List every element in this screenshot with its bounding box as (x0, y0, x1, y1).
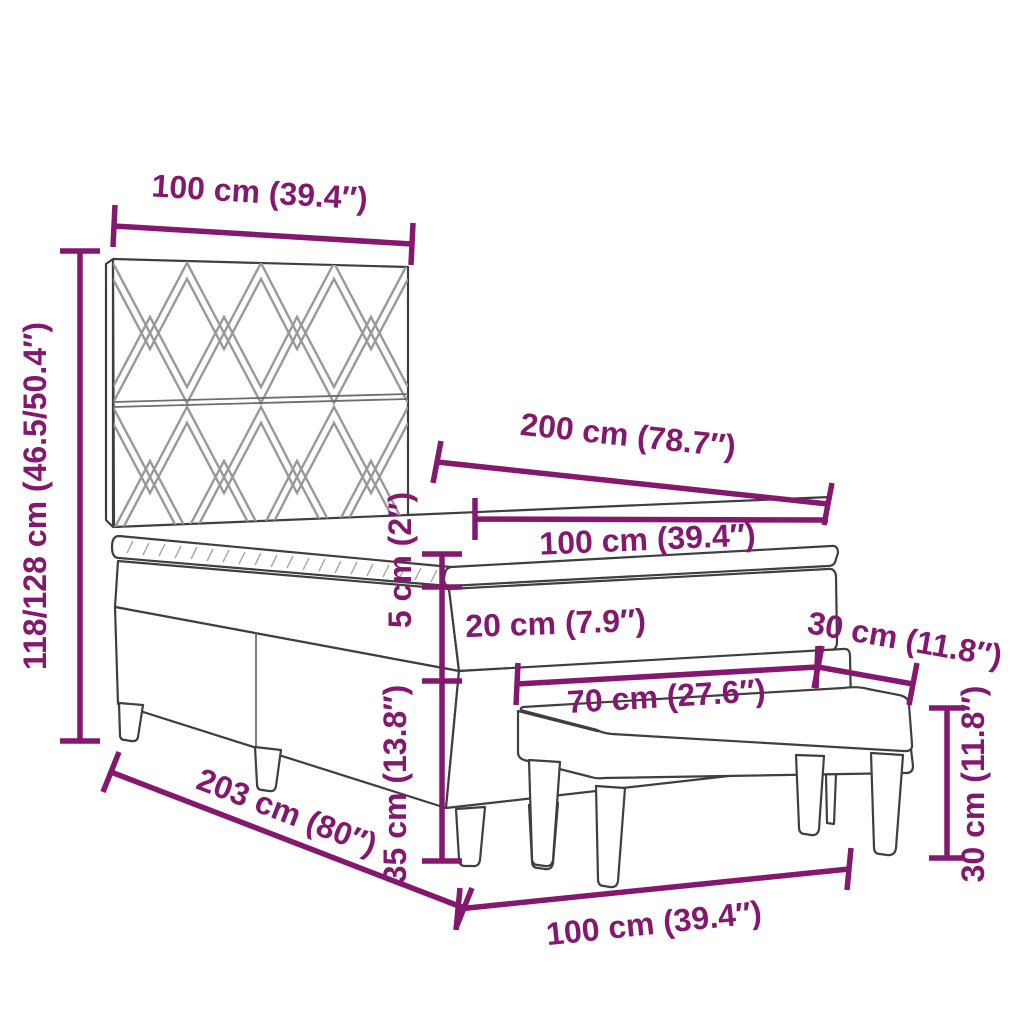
bench-leg (596, 786, 625, 887)
bench-leg (871, 753, 903, 855)
product-dimension-diagram: 100 cm (39.4″) 118/128 cm (46.5/50.4″) 2… (0, 0, 1024, 1024)
dimension-label: 100 cm (39.4″) (151, 167, 369, 216)
dimension-label: 118/128 cm (46.5/50.4″) (17, 322, 53, 670)
dimension-line (60, 251, 100, 741)
dim-bed-foot-width: 100 cm (39.4″) (456, 848, 851, 952)
headboard-front-face (113, 259, 408, 527)
dimension-label-topper: 5 cm (2″) (382, 492, 418, 628)
dimension-line (113, 205, 413, 265)
dim-bench-height: 30 cm (11.8″) (929, 686, 991, 883)
dimension-label: 100 cm (39.4″) (544, 894, 763, 952)
dim-bed-length: 200 cm (78.7″) (433, 406, 832, 525)
bed-leg (456, 807, 485, 866)
bed-diagram-svg: 100 cm (39.4″) 118/128 cm (46.5/50.4″) 2… (0, 0, 1024, 1024)
headboard (106, 259, 408, 547)
dimension-label-mattress: 20 cm (7.9″) (465, 602, 647, 644)
dimension-label: 30 cm (11.8″) (955, 686, 991, 883)
dim-headboard-height: 118/128 cm (46.5/50.4″) (17, 251, 100, 741)
dim-headboard-width: 100 cm (39.4″) (113, 167, 413, 265)
dimension-label-base: 35 cm (13.8″) (377, 685, 413, 884)
bench-leg (529, 760, 560, 866)
headboard-side-strip (106, 259, 113, 527)
bed-leg (119, 703, 143, 741)
dimension-label: 200 cm (78.7″) (519, 406, 738, 464)
bench-leg-back-right (826, 774, 836, 824)
bench-leg (796, 755, 824, 835)
